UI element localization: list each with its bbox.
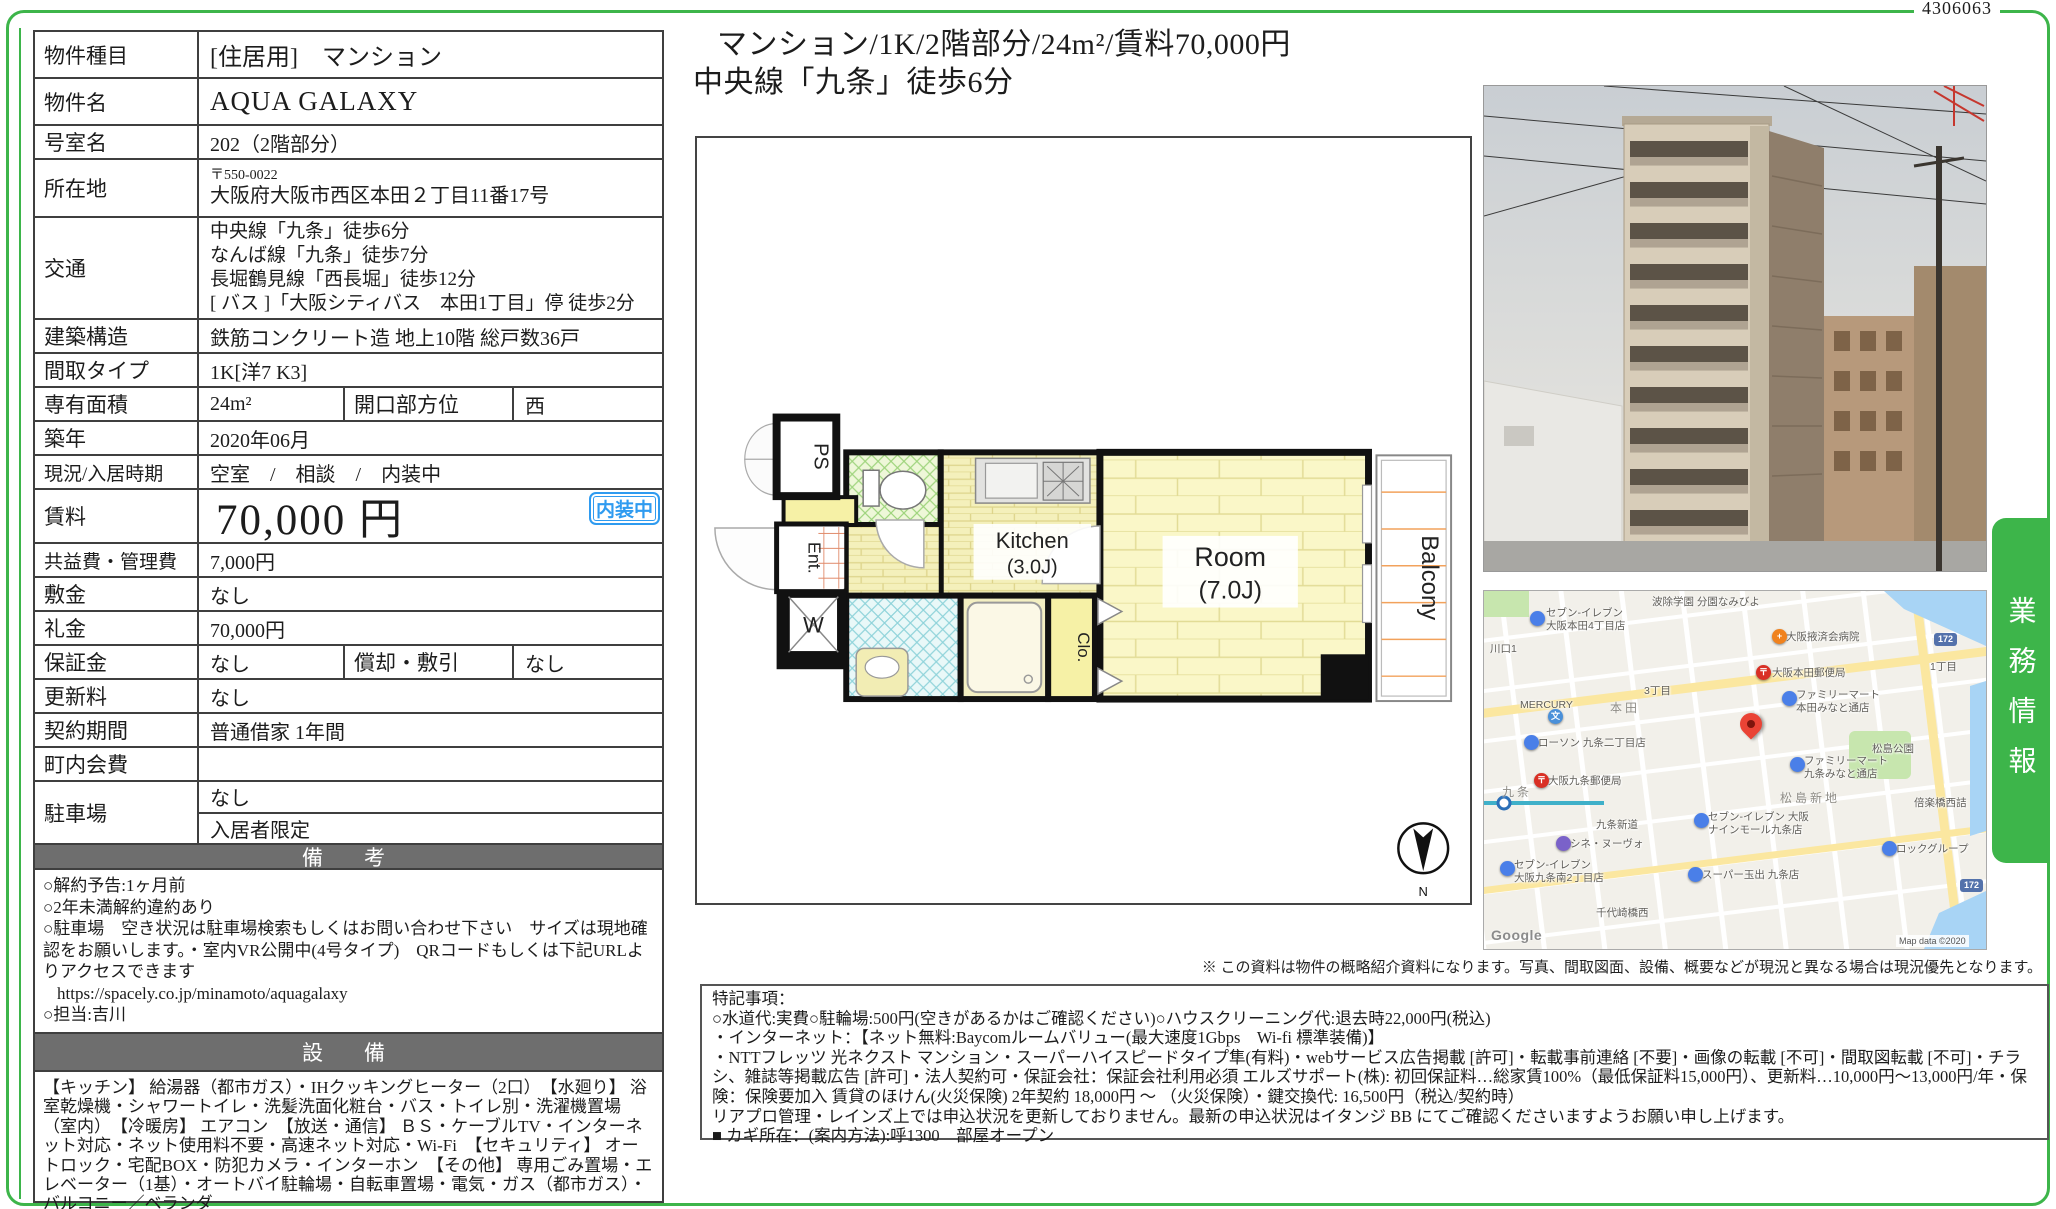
row-value: なし	[199, 680, 662, 712]
map-item: スーパー玉出 九条店	[1702, 869, 1799, 882]
map-item: 3丁目	[1644, 685, 1671, 698]
property-table: 物件種目 [住居用] マンション 物件名 AQUA GALAXY 号室名 202…	[33, 30, 664, 1203]
row-built-year: 築年 2020年06月	[35, 420, 662, 454]
remarks-line[interactable]: https://spacely.co.jp/minamoto/aquagalax…	[43, 983, 654, 1005]
special-notes-line: ・インターネット：【ネット無料:Baycomルームバリュー(最大速度1Gbps …	[712, 1028, 2037, 1048]
toilet-tank	[863, 470, 879, 506]
parking-value-1: なし	[199, 782, 662, 814]
row-structure: 建築構造 鉄筋コンクリート造 地上10階 総戸数36戸	[35, 318, 662, 352]
row-value	[199, 748, 662, 780]
row-key-money: 礼金 70,000円	[35, 610, 662, 644]
map-item[interactable]: 文	[1548, 709, 1563, 724]
map-item: MERCURY	[1520, 699, 1573, 712]
row-town-fee: 町内会費	[35, 746, 662, 780]
row-value: 鉄筋コンクリート造 地上10階 総戸数36戸	[199, 320, 662, 352]
map-item[interactable]	[1694, 813, 1709, 828]
equipment-header: 設 備	[35, 1032, 662, 1070]
row-area: 専有面積 24m² 開口部方位 西	[35, 386, 662, 420]
kitchen-size-label: (3.0J)	[1007, 557, 1058, 579]
row-rent: 賃料 70,000 円 内装中	[35, 488, 662, 542]
map-item[interactable]	[1688, 867, 1703, 882]
map-item: 波除学園 分園なみびよ	[1652, 596, 1760, 609]
window-2	[1363, 565, 1372, 623]
kitchen-label: Kitchen	[996, 528, 1069, 553]
remarks-line: ○担当:吉川	[43, 1004, 654, 1026]
row-address: 所在地 〒550-0022 大阪府大阪市西区本田２丁目11番17号	[35, 158, 662, 216]
guarantee-value: なし	[199, 646, 345, 678]
row-mgmt-fee: 共益費・管理費 7,000円	[35, 542, 662, 576]
closet-label: Clo.	[1074, 632, 1093, 662]
balcony-label: Balcony	[1416, 535, 1443, 620]
row-room-no: 号室名 202（2階部分）	[35, 124, 662, 158]
row-value: 1K[洋7 K3]	[199, 354, 662, 386]
row-value: 202（2階部分）	[199, 126, 662, 158]
access-line: なんば線「九条」徒歩7分	[210, 244, 429, 268]
map-item[interactable]: 〒	[1756, 665, 1771, 680]
ps-label: PS	[809, 443, 831, 470]
row-label: 号室名	[35, 126, 199, 158]
remarks-header: 備 考	[35, 843, 662, 868]
remarks-line: ○2年未満解約違約あり	[43, 897, 654, 919]
location-map[interactable]: セブン-イレブン 大阪本田4丁目店波除学園 分園なみびよ川口1大阪掖済会病院大阪…	[1483, 590, 1987, 950]
map-item: Map data ©2020	[1896, 935, 1969, 947]
white-building-window	[1504, 426, 1534, 446]
disclaimer-note: ※ この資料は物件の概略紹介資料になります。写真、間取図面、設備、概要などが現況…	[1202, 956, 2042, 977]
map-item[interactable]	[1500, 861, 1515, 876]
building-photo	[1483, 85, 1987, 572]
map-item[interactable]: +	[1772, 629, 1787, 644]
rent-amount: 70,000 円	[210, 485, 404, 547]
map-item: セブン-イレブン 大阪九条南2丁目店	[1514, 859, 1604, 884]
bathtub	[968, 603, 1042, 693]
row-label: 物件名	[35, 79, 199, 124]
basin-bowl	[865, 656, 899, 678]
row-label: 敷金	[35, 578, 199, 610]
entrance-label: Ent.	[804, 542, 824, 574]
access-line: 長堀鶴見線「西長堀」徒歩12分	[210, 268, 476, 292]
parking-values: なし 入居者限定	[199, 782, 662, 843]
row-deposit: 敷金 なし	[35, 576, 662, 610]
map-item: シネ・ヌーヴォ	[1570, 838, 1644, 851]
map-item[interactable]	[1782, 691, 1797, 706]
row-property-type: 物件種目 [住居用] マンション	[35, 32, 662, 77]
row-label: 更新料	[35, 680, 199, 712]
row-label: 賃料	[35, 490, 199, 542]
amortization-value: なし	[514, 646, 662, 678]
stove-grid	[1043, 462, 1083, 500]
amortization-label: 償却・敷引	[345, 646, 514, 678]
special-notes-line: リアプロ管理・レインズ上では申込状況を更新しておりません。最新の申込状況はイタン…	[712, 1107, 2037, 1127]
row-layout-type: 間取タイプ 1K[洋7 K3]	[35, 352, 662, 386]
map-item: 松島新地	[1780, 791, 1840, 805]
map-item: セブン-イレブン 大阪本田4丁目店	[1546, 607, 1625, 632]
opening-direction-value: 西	[514, 388, 662, 420]
row-term: 契約期間 普通借家 1年間	[35, 712, 662, 746]
map-item: 大阪本田郵便局	[1772, 667, 1846, 680]
special-notes-line: ■ カギ所在：(案内方法):呼1300 部屋オープン	[712, 1126, 2037, 1146]
access-line: 中央線「九条」徒歩6分	[210, 220, 410, 244]
floor-plan: Kitchen (3.0J) Room (7.0J) PS Ent. W Clo…	[695, 136, 1472, 905]
map-item[interactable]: Google	[1491, 927, 1542, 943]
entry-hall-strip	[784, 497, 857, 525]
row-value: [住居用] マンション	[199, 32, 662, 77]
row-access: 交通 中央線「九条」徒歩6分なんば線「九条」徒歩7分長堀鶴見線「西長堀」徒歩12…	[35, 216, 662, 318]
washer-label: W	[803, 612, 824, 637]
map-labels-layer: セブン-イレブン 大阪本田4丁目店波除学園 分園なみびよ川口1大阪掖済会病院大阪…	[1484, 591, 1986, 949]
row-label: 交通	[35, 218, 199, 318]
equipment-block: 【キッチン】 給湯器（都市ガス）・IHクッキングヒーター（2口） 【水廻り】 浴…	[35, 1070, 662, 1201]
map-item: 172	[1960, 879, 1983, 892]
window-1	[1363, 485, 1372, 543]
postal-code: 〒550-0022	[210, 168, 278, 184]
row-label: 現況/入居時期	[35, 456, 199, 488]
row-value: AQUA GALAXY	[199, 79, 662, 124]
map-item: ファミリーマート 本田みなと通店	[1796, 689, 1880, 714]
row-renewal-fee: 更新料 なし	[35, 678, 662, 712]
street	[1484, 541, 1986, 571]
row-label: 共益費・管理費	[35, 544, 199, 576]
area-value: 24m²	[199, 388, 345, 420]
map-item[interactable]: 〒	[1534, 773, 1549, 788]
map-item: 1丁目	[1930, 661, 1957, 674]
row-value: 普通借家 1年間	[199, 714, 662, 746]
special-notes-line: ○水道代:実費○駐輪場:500円(空きがあるかはご確認ください)○ハウスクリーニ…	[712, 1009, 2037, 1029]
map-item: 倍楽橋西詰	[1914, 797, 1967, 810]
row-parking: 駐車場 なし 入居者限定	[35, 780, 662, 843]
row-label: 所在地	[35, 160, 199, 216]
map-item[interactable]	[1735, 708, 1766, 739]
map-item: 172	[1934, 633, 1957, 646]
ps-door-arc-lower	[745, 459, 777, 495]
headline-line2: 中央線「九条」徒歩6分	[693, 64, 1493, 102]
remarks-line: ○解約予告:1ヶ月前	[43, 875, 654, 897]
parking-value-2: 入居者限定	[199, 814, 662, 844]
map-item[interactable]	[1790, 757, 1805, 772]
map-item[interactable]	[1882, 841, 1897, 856]
map-item: セブン-イレブン 大阪 ナインモール九条店	[1708, 811, 1809, 836]
pillar	[1321, 654, 1369, 699]
map-item: ローソン 九条二丁目店	[1538, 737, 1646, 750]
map-item[interactable]	[1524, 735, 1539, 750]
row-value: 中央線「九条」徒歩6分なんば線「九条」徒歩7分長堀鶴見線「西長堀」徒歩12分[ …	[199, 218, 662, 318]
opening-direction-label: 開口部方位	[345, 388, 514, 420]
property-sheet: 4306063 マンション/1K/2階部分/24m²/賃料70,000円 中央線…	[0, 0, 2056, 1209]
row-value: 空室 / 相談 / 内装中	[199, 456, 662, 488]
row-value: 7,000円	[199, 544, 662, 576]
map-item: 松島公園	[1872, 743, 1914, 756]
compass-n-label: N	[1419, 884, 1428, 899]
toilet-bowl	[880, 471, 926, 509]
room-label: Room	[1194, 542, 1266, 572]
green-frame-inner-line	[19, 28, 21, 1199]
row-value: 〒550-0022 大阪府大阪市西区本田２丁目11番17号	[199, 160, 662, 216]
access-line: [ バス ]「大阪シティバス 本田1丁目」停 徒歩2分	[210, 292, 635, 316]
entrance-door-arc	[715, 528, 777, 590]
row-label: 築年	[35, 422, 199, 454]
remarks-line: ○駐車場 空き状況は駐車場検索もしくはお問い合わせ下さい サイズは現地確認をお願…	[43, 918, 654, 983]
row-label: 町内会費	[35, 748, 199, 780]
map-item: 九条新道	[1596, 819, 1638, 832]
row-property-name: 物件名 AQUA GALAXY	[35, 77, 662, 124]
row-label: 物件種目	[35, 32, 199, 77]
headline-line1: マンション/1K/2階部分/24m²/賃料70,000円	[693, 26, 1493, 64]
map-item: 千代崎橋西	[1596, 907, 1649, 920]
row-label: 保証金	[35, 646, 199, 678]
business-info-tab[interactable]: 業務情報	[1992, 518, 2049, 863]
building-photo-illustration	[1484, 86, 1986, 571]
row-label: 建築構造	[35, 320, 199, 352]
kitchen-sink	[986, 463, 1038, 498]
ps-door-arc-upper	[745, 424, 777, 460]
north-compass-icon: N	[1398, 823, 1448, 899]
map-item: 大阪掖済会病院	[1786, 631, 1860, 644]
row-value: 70,000円	[199, 612, 662, 644]
building-side	[1769, 131, 1824, 556]
remarks-block: ○解約予告:1ヶ月前○2年未満解約違約あり○駐車場 空き状況は駐車場検索もしくは…	[35, 868, 662, 1032]
special-notes-line: 特記事項：	[712, 989, 2037, 1009]
headline: マンション/1K/2階部分/24m²/賃料70,000円 中央線「九条」徒歩6分	[693, 26, 1493, 102]
document-number: 4306063	[1914, 0, 2000, 19]
map-item: 川口1	[1490, 643, 1517, 656]
map-item[interactable]	[1556, 836, 1571, 851]
address-text: 大阪府大阪市西区本田２丁目11番17号	[210, 184, 549, 208]
map-item: ロックグループ	[1896, 843, 1968, 856]
room-size-label: (7.0J)	[1198, 577, 1262, 605]
row-status: 現況/入居時期 空室 / 相談 / 内装中	[35, 454, 662, 488]
row-guarantee: 保証金 なし 償却・敷引 なし	[35, 644, 662, 678]
stair-column	[1750, 126, 1769, 556]
row-value: 2020年06月	[199, 422, 662, 454]
map-item: ファミリーマート 九条みなと通店	[1804, 755, 1888, 780]
row-label: 専有面積	[35, 388, 199, 420]
row-value: 70,000 円 内装中	[199, 490, 662, 542]
map-item: 大阪九条郵便局	[1548, 775, 1622, 788]
floor-plan-drawing: Kitchen (3.0J) Room (7.0J) PS Ent. W Clo…	[697, 138, 1470, 903]
interior-work-badge: 内装中	[589, 492, 660, 525]
map-item: 九条	[1502, 785, 1532, 799]
map-item[interactable]	[1530, 611, 1545, 626]
row-value: なし	[199, 578, 662, 610]
row-label: 契約期間	[35, 714, 199, 746]
far-building	[1914, 266, 1986, 571]
brown-building	[1824, 316, 1914, 571]
special-notes-line: ・NTTフレッツ 光ネクスト マンション・スーパーハイスピードタイプ隼(有料)・…	[712, 1048, 2037, 1107]
special-notes: 特記事項：○水道代:実費○駐輪場:500円(空きがあるかはご確認ください)○ハウ…	[700, 984, 2049, 1140]
row-label: 駐車場	[35, 782, 199, 843]
map-item: 本田	[1610, 701, 1640, 715]
row-label: 礼金	[35, 612, 199, 644]
row-label: 間取タイプ	[35, 354, 199, 386]
